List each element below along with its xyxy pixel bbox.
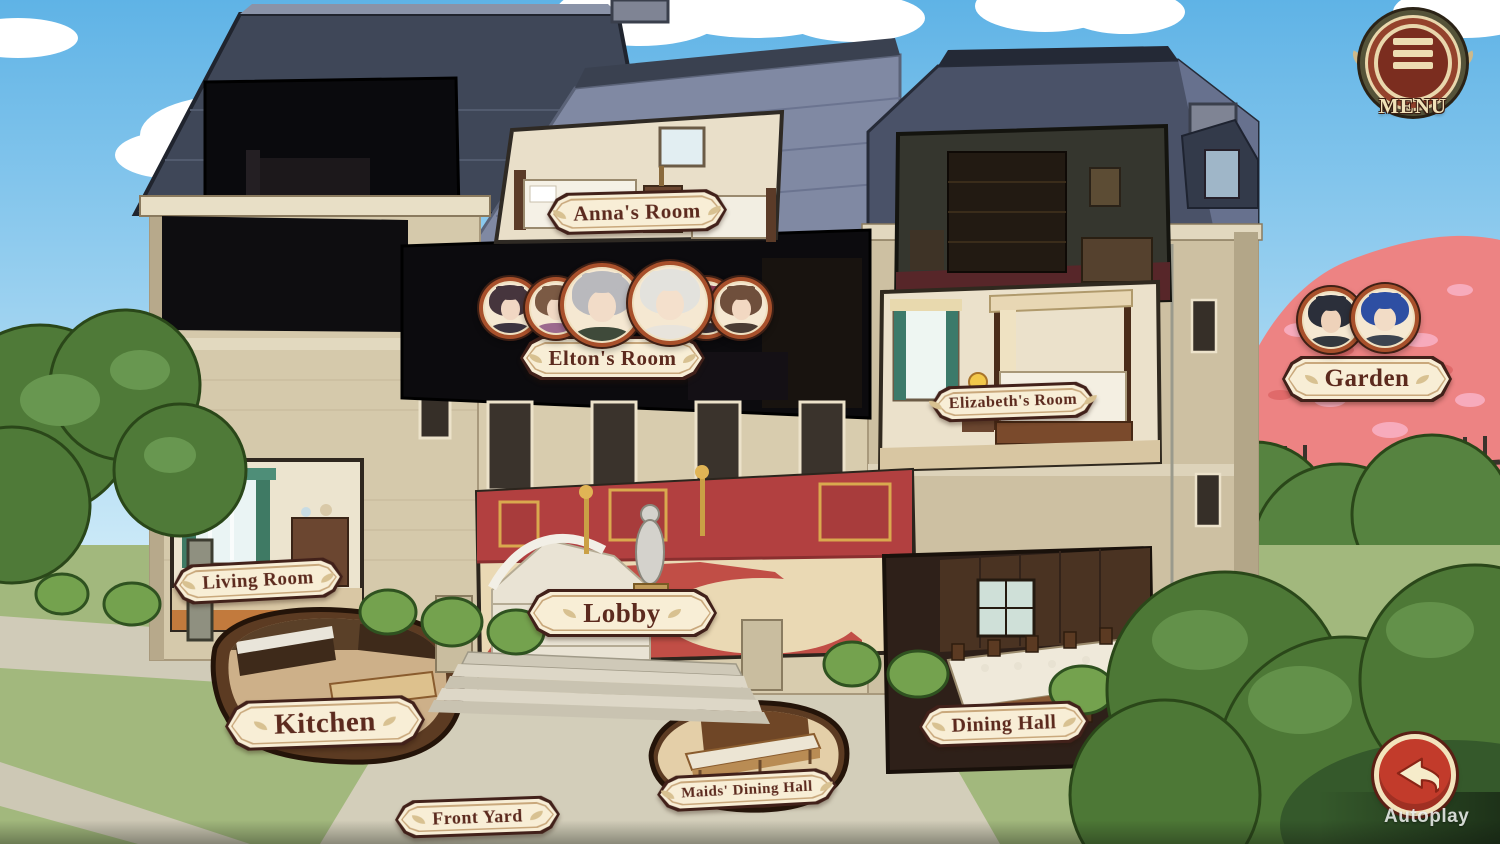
room-label-text: Front Yard <box>432 805 523 829</box>
hamburger-menu-icon <box>1378 28 1448 98</box>
room-view-eltons-room[interactable] <box>402 230 870 418</box>
mansion-map-screen: Anna's Room Elton's Room Elizabeth's Roo… <box>0 0 1500 844</box>
room-label-text: Kitchen <box>274 705 377 742</box>
portrait-character-1[interactable] <box>485 283 535 333</box>
back-button[interactable] <box>1374 734 1456 816</box>
room-label-dining-hall[interactable]: Dining Hall <box>918 700 1089 748</box>
character-face <box>501 298 520 320</box>
room-label-text: Elton's Room <box>549 346 677 371</box>
character-face <box>547 298 566 320</box>
character-face <box>656 289 683 321</box>
menu-button-label: MENU <box>1379 94 1447 119</box>
portrait-garden-character-1[interactable] <box>1304 293 1358 347</box>
room-label-front-yard[interactable]: Front Yard <box>394 795 560 839</box>
room-label-garden[interactable]: Garden <box>1282 356 1452 402</box>
character-face <box>1374 307 1395 332</box>
character-face <box>1321 309 1342 333</box>
room-view-study-attic <box>896 126 1170 308</box>
room-label-text: Anna's Room <box>573 198 701 226</box>
room-label-text: Garden <box>1325 365 1410 393</box>
character-face <box>732 298 751 320</box>
character-face <box>588 291 615 323</box>
room-view-elizabeths-room[interactable] <box>880 282 1160 470</box>
portrait-character-3[interactable] <box>566 269 638 341</box>
portrait-garden-character-2[interactable] <box>1357 290 1413 346</box>
autoplay-label: Autoplay <box>1384 806 1469 828</box>
bottom-shade <box>0 820 1500 844</box>
portrait-character-6[interactable] <box>716 283 766 333</box>
portrait-character-4[interactable] <box>634 267 706 339</box>
back-arrow-icon <box>1391 751 1439 799</box>
room-label-annas-room[interactable]: Anna's Room <box>546 189 727 236</box>
room-label-lobby[interactable]: Lobby <box>527 589 717 637</box>
room-label-kitchen[interactable]: Kitchen <box>224 695 426 752</box>
menu-button[interactable]: MENU <box>1356 6 1470 120</box>
room-label-eltons-room[interactable]: Elton's Room <box>520 336 705 380</box>
room-label-text: Lobby <box>583 598 661 629</box>
room-label-text: Dining Hall <box>951 711 1057 738</box>
room-label-elizabeths-room[interactable]: Elizabeth's Room <box>930 381 1095 423</box>
